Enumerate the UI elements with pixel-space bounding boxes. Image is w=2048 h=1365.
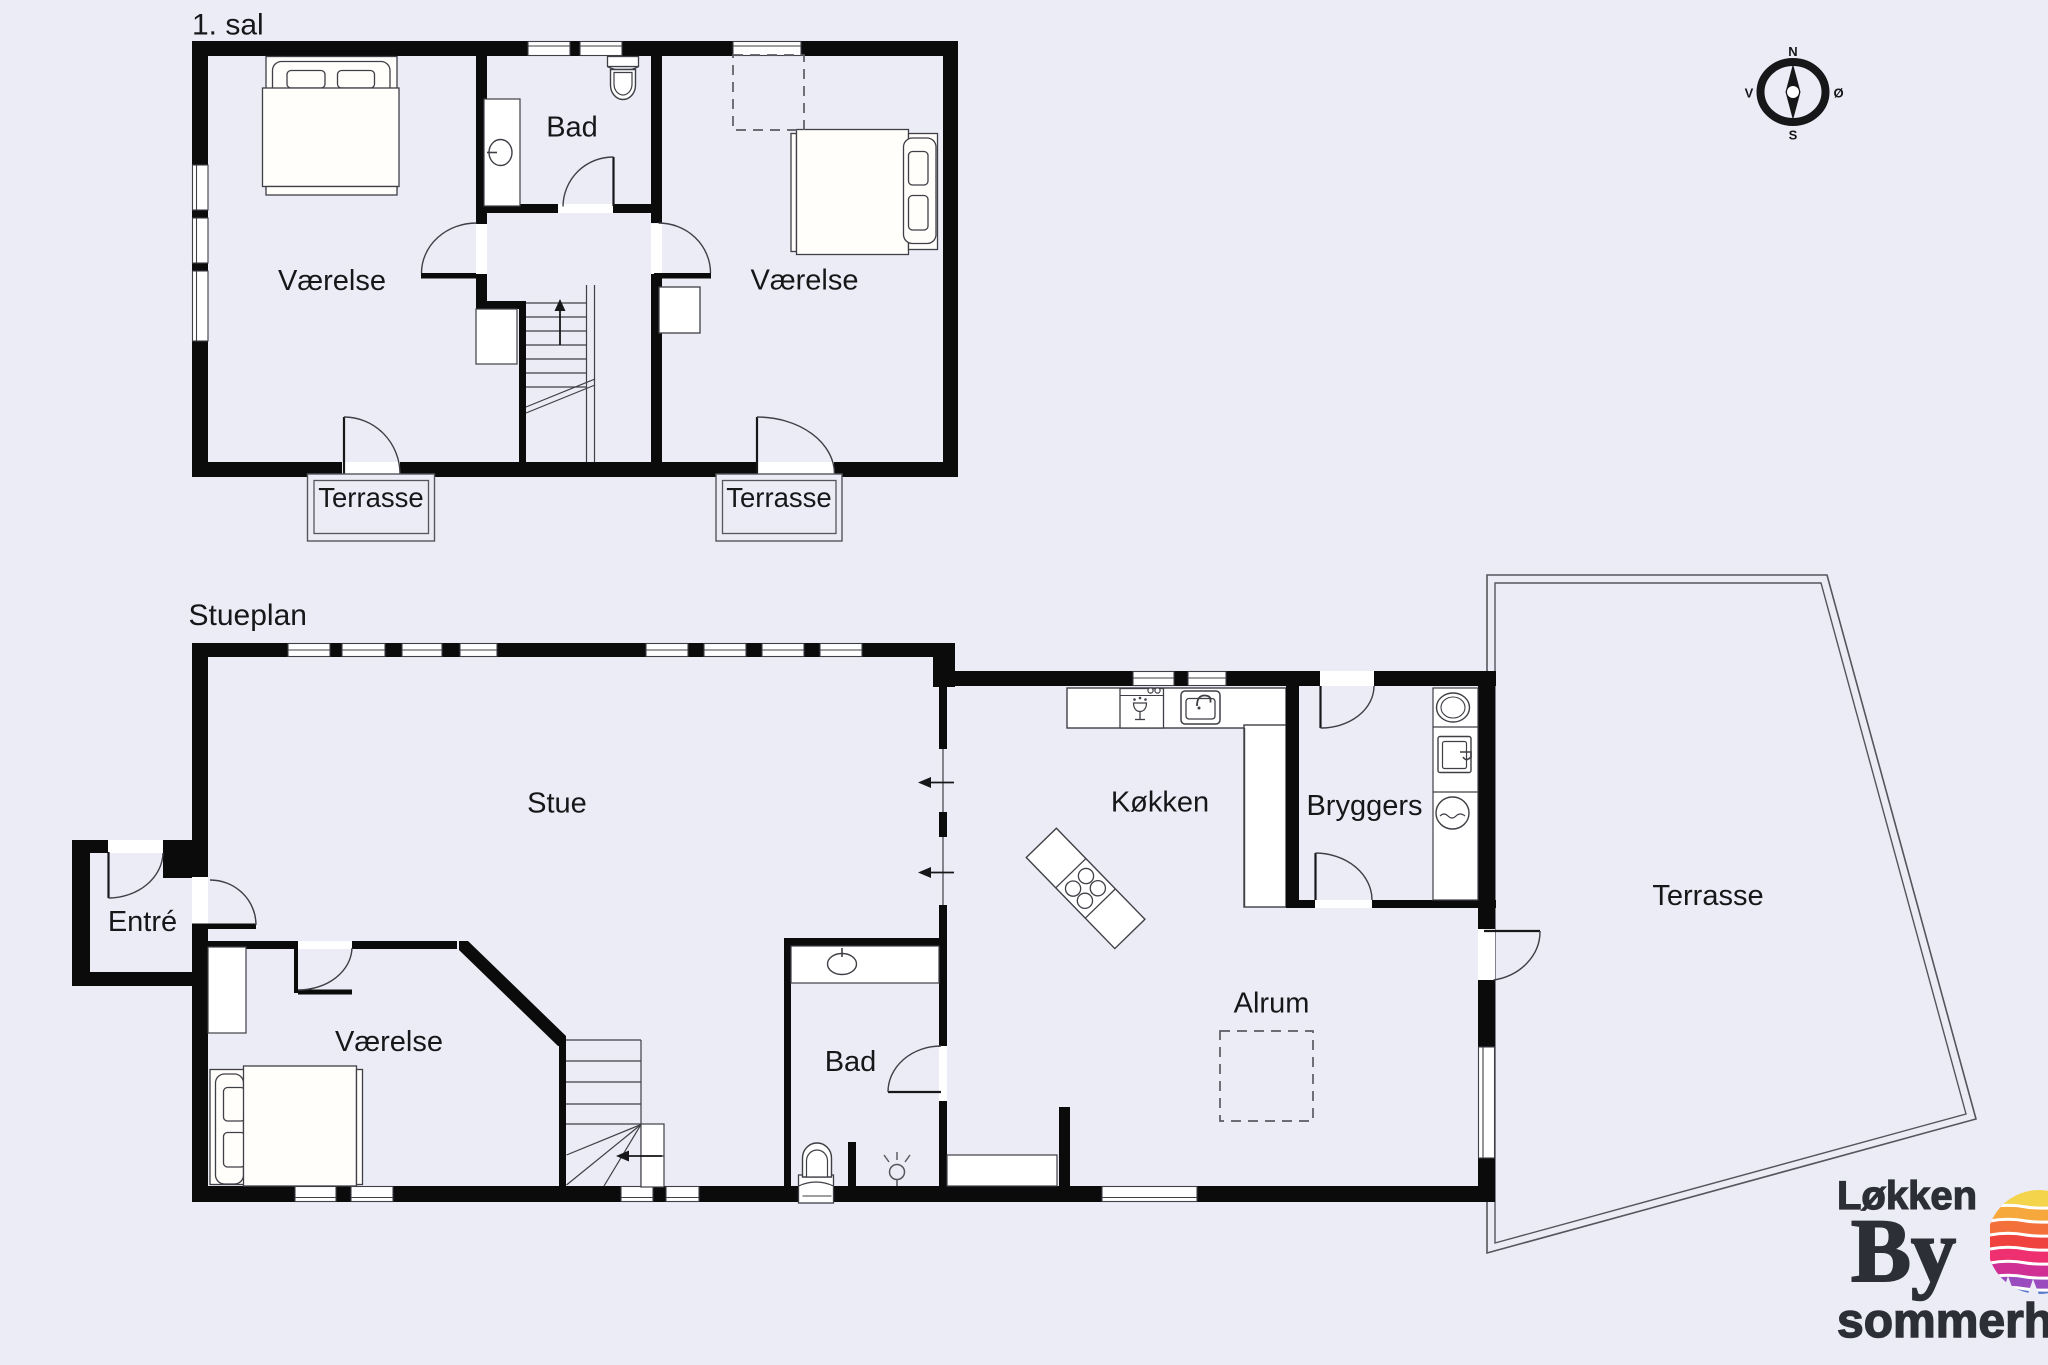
svg-text:Terrasse: Terrasse (318, 482, 423, 513)
svg-text:1. sal: 1. sal (192, 9, 264, 42)
svg-text:Entré: Entré (108, 906, 177, 938)
svg-text:Ø: Ø (1833, 86, 1843, 101)
svg-text:Stue: Stue (527, 788, 587, 820)
svg-text:Bryggers: Bryggers (1306, 790, 1422, 822)
svg-text:Alrum: Alrum (1234, 988, 1310, 1020)
svg-text:V: V (1745, 86, 1754, 101)
svg-text:Terrasse: Terrasse (1652, 880, 1763, 912)
svg-text:Bad: Bad (546, 112, 598, 144)
svg-text:Værelse: Værelse (278, 265, 386, 297)
svg-text:Stueplan: Stueplan (189, 599, 307, 632)
svg-text:sommerhus: sommerhus (1837, 1295, 2048, 1348)
svg-text:N: N (1788, 44, 1797, 59)
svg-text:Terrasse: Terrasse (726, 482, 831, 513)
svg-text:By: By (1851, 1202, 1956, 1301)
svg-text:S: S (1789, 128, 1798, 143)
svg-text:Køkken: Køkken (1111, 787, 1209, 819)
svg-text:Værelse: Værelse (335, 1026, 443, 1058)
svg-text:Bad: Bad (825, 1046, 877, 1078)
svg-text:Værelse: Værelse (751, 265, 859, 297)
